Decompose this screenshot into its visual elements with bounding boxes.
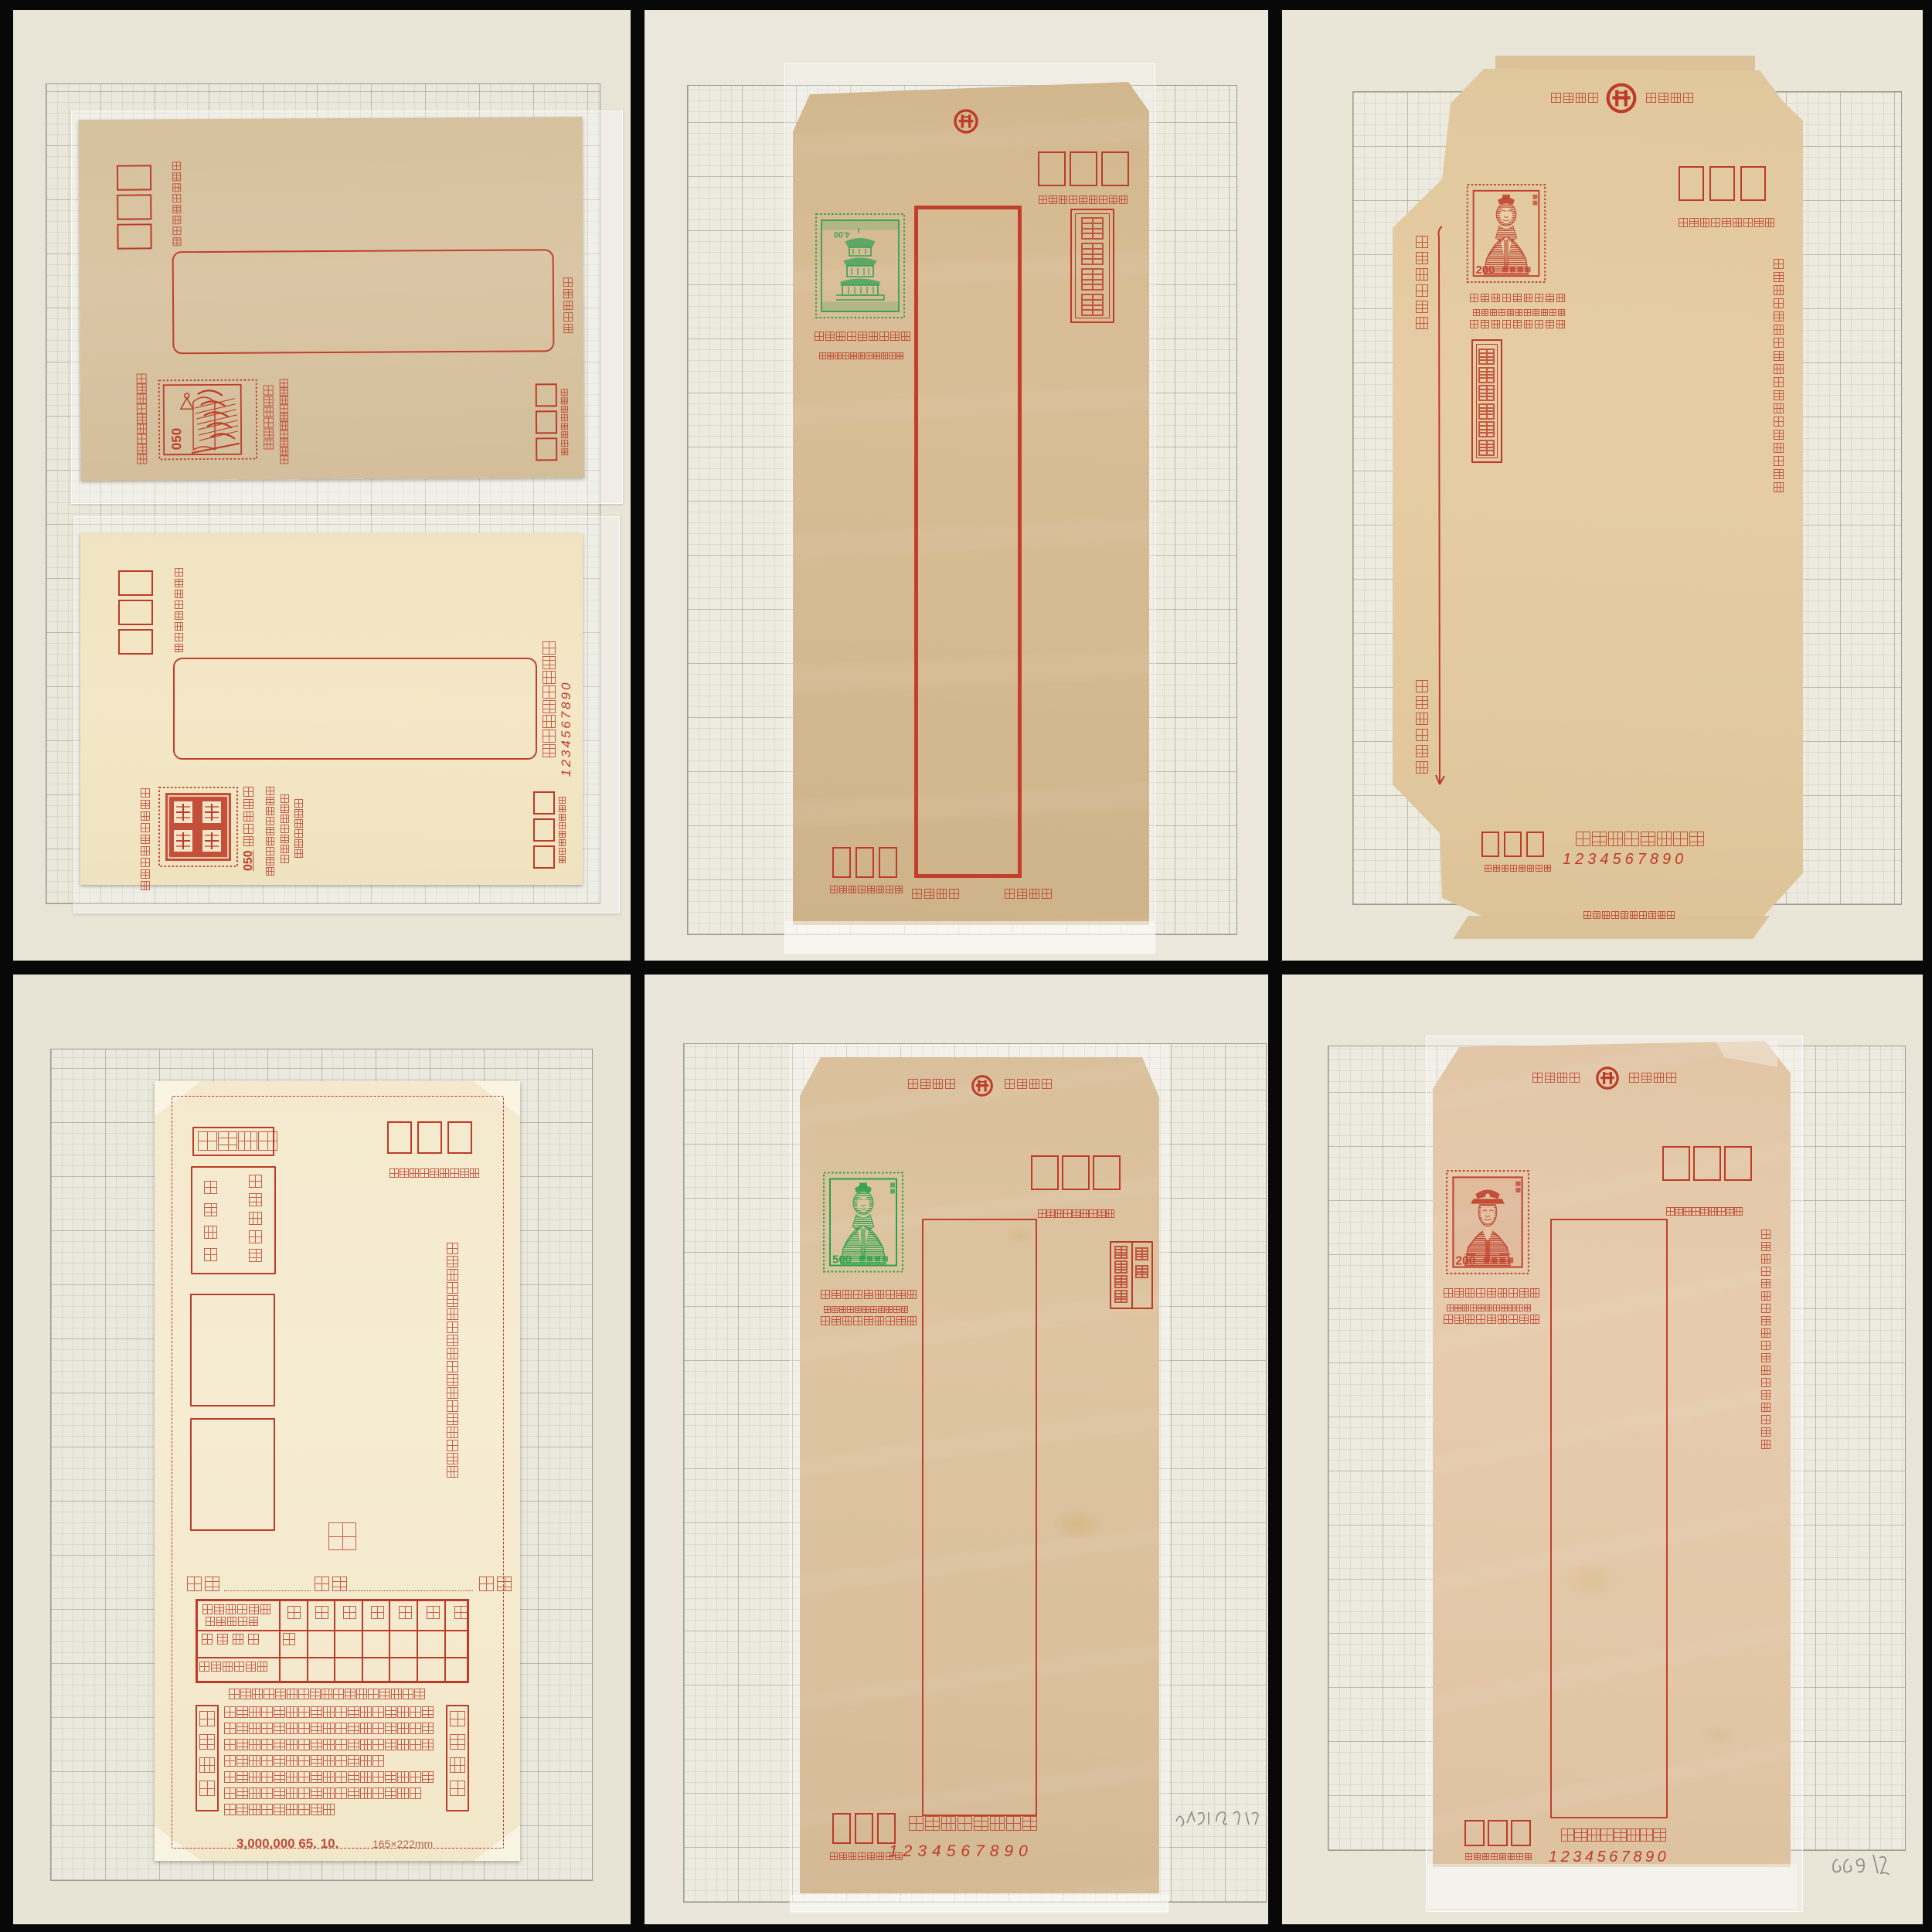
svg-text:200: 200 — [1455, 1255, 1475, 1268]
svg-text:500: 500 — [832, 1253, 852, 1267]
svg-text:4.00: 4.00 — [834, 230, 850, 239]
svg-text:200: 200 — [1476, 264, 1495, 277]
svg-text:050: 050 — [169, 428, 184, 450]
